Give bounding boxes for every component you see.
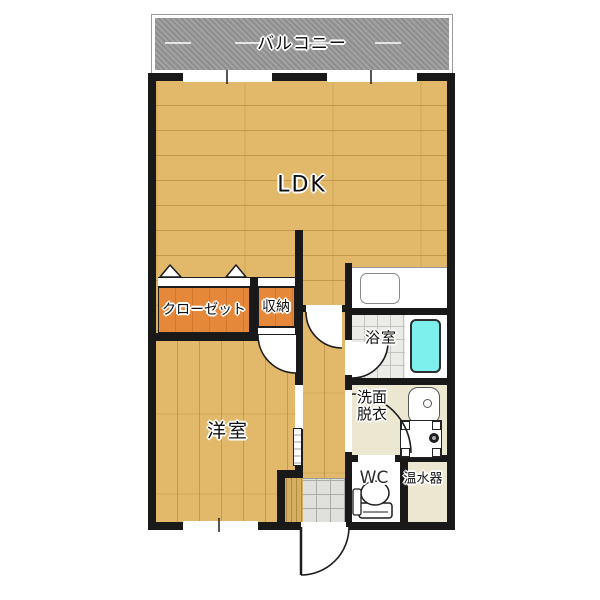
- bathroom-label: 浴室: [365, 329, 397, 346]
- floor-plan: バルコニー LDK クローゼット 収納 洋室 浴室 洗面 脱衣 WC 温水器: [0, 0, 600, 600]
- washroom-label: 洗面 脱衣: [357, 389, 387, 424]
- washroom-label-line1: 洗面: [357, 388, 387, 406]
- closet-label: クローゼット: [162, 302, 246, 318]
- wc-label: WC: [360, 469, 389, 489]
- washroom-label-line2: 脱衣: [357, 405, 387, 423]
- balcony-label: バルコニー: [257, 35, 347, 55]
- western-room-label: 洋室: [207, 421, 249, 443]
- ldk-label: LDK: [277, 172, 327, 197]
- toilet-side-unit: [353, 489, 361, 515]
- bifold-door-triangle-2: [226, 265, 246, 277]
- storage-label: 収納: [262, 299, 290, 315]
- bifold-door-triangle-1: [160, 265, 181, 277]
- symbols-overlay: [0, 0, 600, 600]
- water-heater-label: 温水器: [403, 473, 442, 488]
